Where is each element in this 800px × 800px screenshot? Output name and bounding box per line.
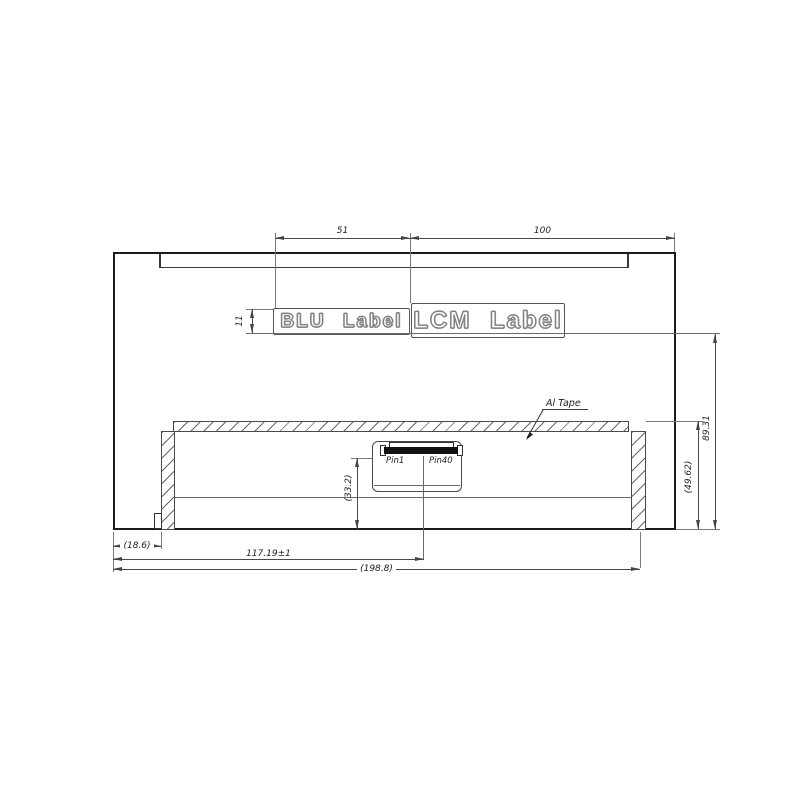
dimension-line-33-2: [357, 458, 358, 529]
dim-text-33-2: (33.2): [344, 474, 354, 501]
connector-centerline: [423, 456, 424, 559]
dim-text-117-19: 117.19±1: [113, 549, 424, 559]
dimension-line-11: [252, 309, 253, 333]
extension-line: [646, 421, 703, 422]
pcb-bottom-line: [374, 485, 460, 486]
dimension-line-89-31: [715, 334, 716, 529]
extension-line: [410, 233, 411, 303]
pin40-label: Pin40: [429, 456, 453, 466]
dim-text-89-31: 89.31: [702, 415, 712, 441]
dim-text-100: 100: [410, 226, 675, 236]
right-frame-hatch: [631, 431, 646, 530]
panel-top-lip: [159, 254, 629, 268]
left-frame-hatch: [161, 431, 175, 530]
dim-text-49-62: (49.62): [684, 461, 694, 494]
dim-text-51: 51: [275, 226, 410, 236]
blu-label-text: BLU Label: [281, 312, 403, 331]
pin1-label: Pin1: [386, 456, 404, 466]
al-tape-label: Al Tape: [546, 398, 581, 409]
chassis-mid-line: [175, 497, 631, 498]
blu-label-box: BLU Label: [273, 308, 410, 335]
dimension-line-49-62: [698, 421, 699, 529]
extension-line: [275, 233, 276, 308]
connector-bar: [384, 447, 458, 454]
dim-text-198-8: (198.8): [113, 564, 640, 574]
al-tape-leader-arrow-icon: [518, 408, 548, 444]
al-tape-underline: [542, 409, 588, 410]
drawing-canvas: 51 100 BLU Label LCM Label 11 Pin1 Pin40…: [0, 0, 800, 800]
dimension-line-117-19: [113, 559, 424, 560]
lcm-label-text: LCM Label: [413, 309, 562, 333]
label-bottom-extension-line: [246, 333, 720, 334]
extension-line: [640, 532, 641, 568]
dimension-line-100: [410, 238, 675, 239]
extension-line: [676, 529, 720, 530]
dimension-line-51: [275, 238, 410, 239]
al-tape-hatch: [173, 421, 629, 432]
dim-text-11: 11: [235, 315, 245, 326]
left-frame-tab: [154, 513, 162, 529]
